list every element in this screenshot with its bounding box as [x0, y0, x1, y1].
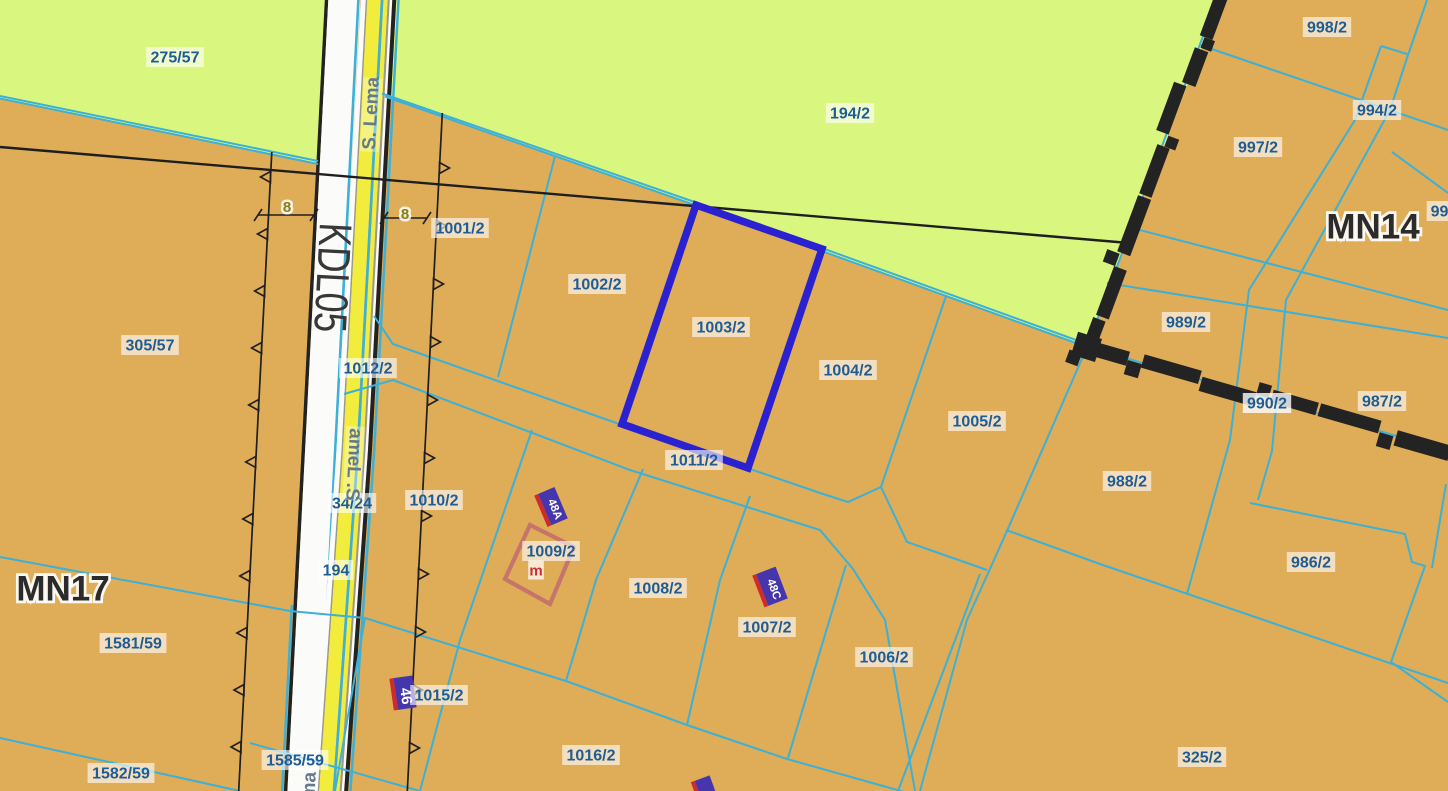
- svg-text:1015/2: 1015/2: [415, 688, 464, 705]
- svg-text:275/57: 275/57: [151, 50, 200, 67]
- svg-text:995: 995: [1431, 204, 1448, 221]
- svg-text:MN17: MN17: [16, 569, 109, 608]
- svg-text:986/2: 986/2: [1291, 555, 1331, 572]
- svg-text:1004/2: 1004/2: [824, 363, 873, 380]
- svg-text:1010/2: 1010/2: [410, 493, 459, 510]
- svg-text:1002/2: 1002/2: [573, 277, 622, 294]
- svg-text:m: m: [529, 562, 542, 579]
- svg-text:1585/59: 1585/59: [266, 753, 324, 770]
- svg-text:194: 194: [323, 563, 350, 580]
- svg-text:8: 8: [283, 199, 291, 216]
- svg-text:1582/59: 1582/59: [92, 766, 150, 783]
- svg-text:1012/2: 1012/2: [344, 361, 393, 378]
- svg-text:194/2: 194/2: [830, 106, 870, 123]
- svg-text:990/2: 990/2: [1247, 396, 1287, 413]
- svg-text:1005/2: 1005/2: [953, 414, 1002, 431]
- svg-text:997/2: 997/2: [1238, 140, 1278, 157]
- svg-text:S. Lema: S. Lema: [359, 76, 384, 150]
- svg-text:305/57: 305/57: [126, 338, 175, 355]
- svg-text:989/2: 989/2: [1166, 315, 1206, 332]
- svg-text:1016/2: 1016/2: [567, 748, 616, 765]
- svg-text:998/2: 998/2: [1307, 20, 1347, 37]
- svg-text:KDL05: KDL05: [304, 221, 361, 333]
- svg-text:1001/2: 1001/2: [436, 221, 485, 238]
- svg-text:1009/2: 1009/2: [527, 544, 576, 561]
- svg-text:1008/2: 1008/2: [634, 581, 683, 598]
- svg-text:1007/2: 1007/2: [743, 620, 792, 637]
- svg-text:1003/2: 1003/2: [697, 320, 746, 337]
- svg-text:987/2: 987/2: [1362, 394, 1402, 411]
- svg-text:ameL .S: ameL .S: [341, 428, 366, 502]
- svg-text:325/2: 325/2: [1182, 750, 1222, 767]
- svg-text:S. Lema: S. Lema: [296, 771, 321, 791]
- svg-text:1581/59: 1581/59: [104, 636, 162, 653]
- svg-text:1011/2: 1011/2: [670, 453, 718, 470]
- svg-text:988/2: 988/2: [1107, 474, 1147, 491]
- svg-text:MN14: MN14: [1326, 207, 1420, 246]
- svg-text:994/2: 994/2: [1357, 103, 1397, 120]
- svg-text:1006/2: 1006/2: [860, 650, 909, 667]
- svg-text:8: 8: [401, 206, 409, 223]
